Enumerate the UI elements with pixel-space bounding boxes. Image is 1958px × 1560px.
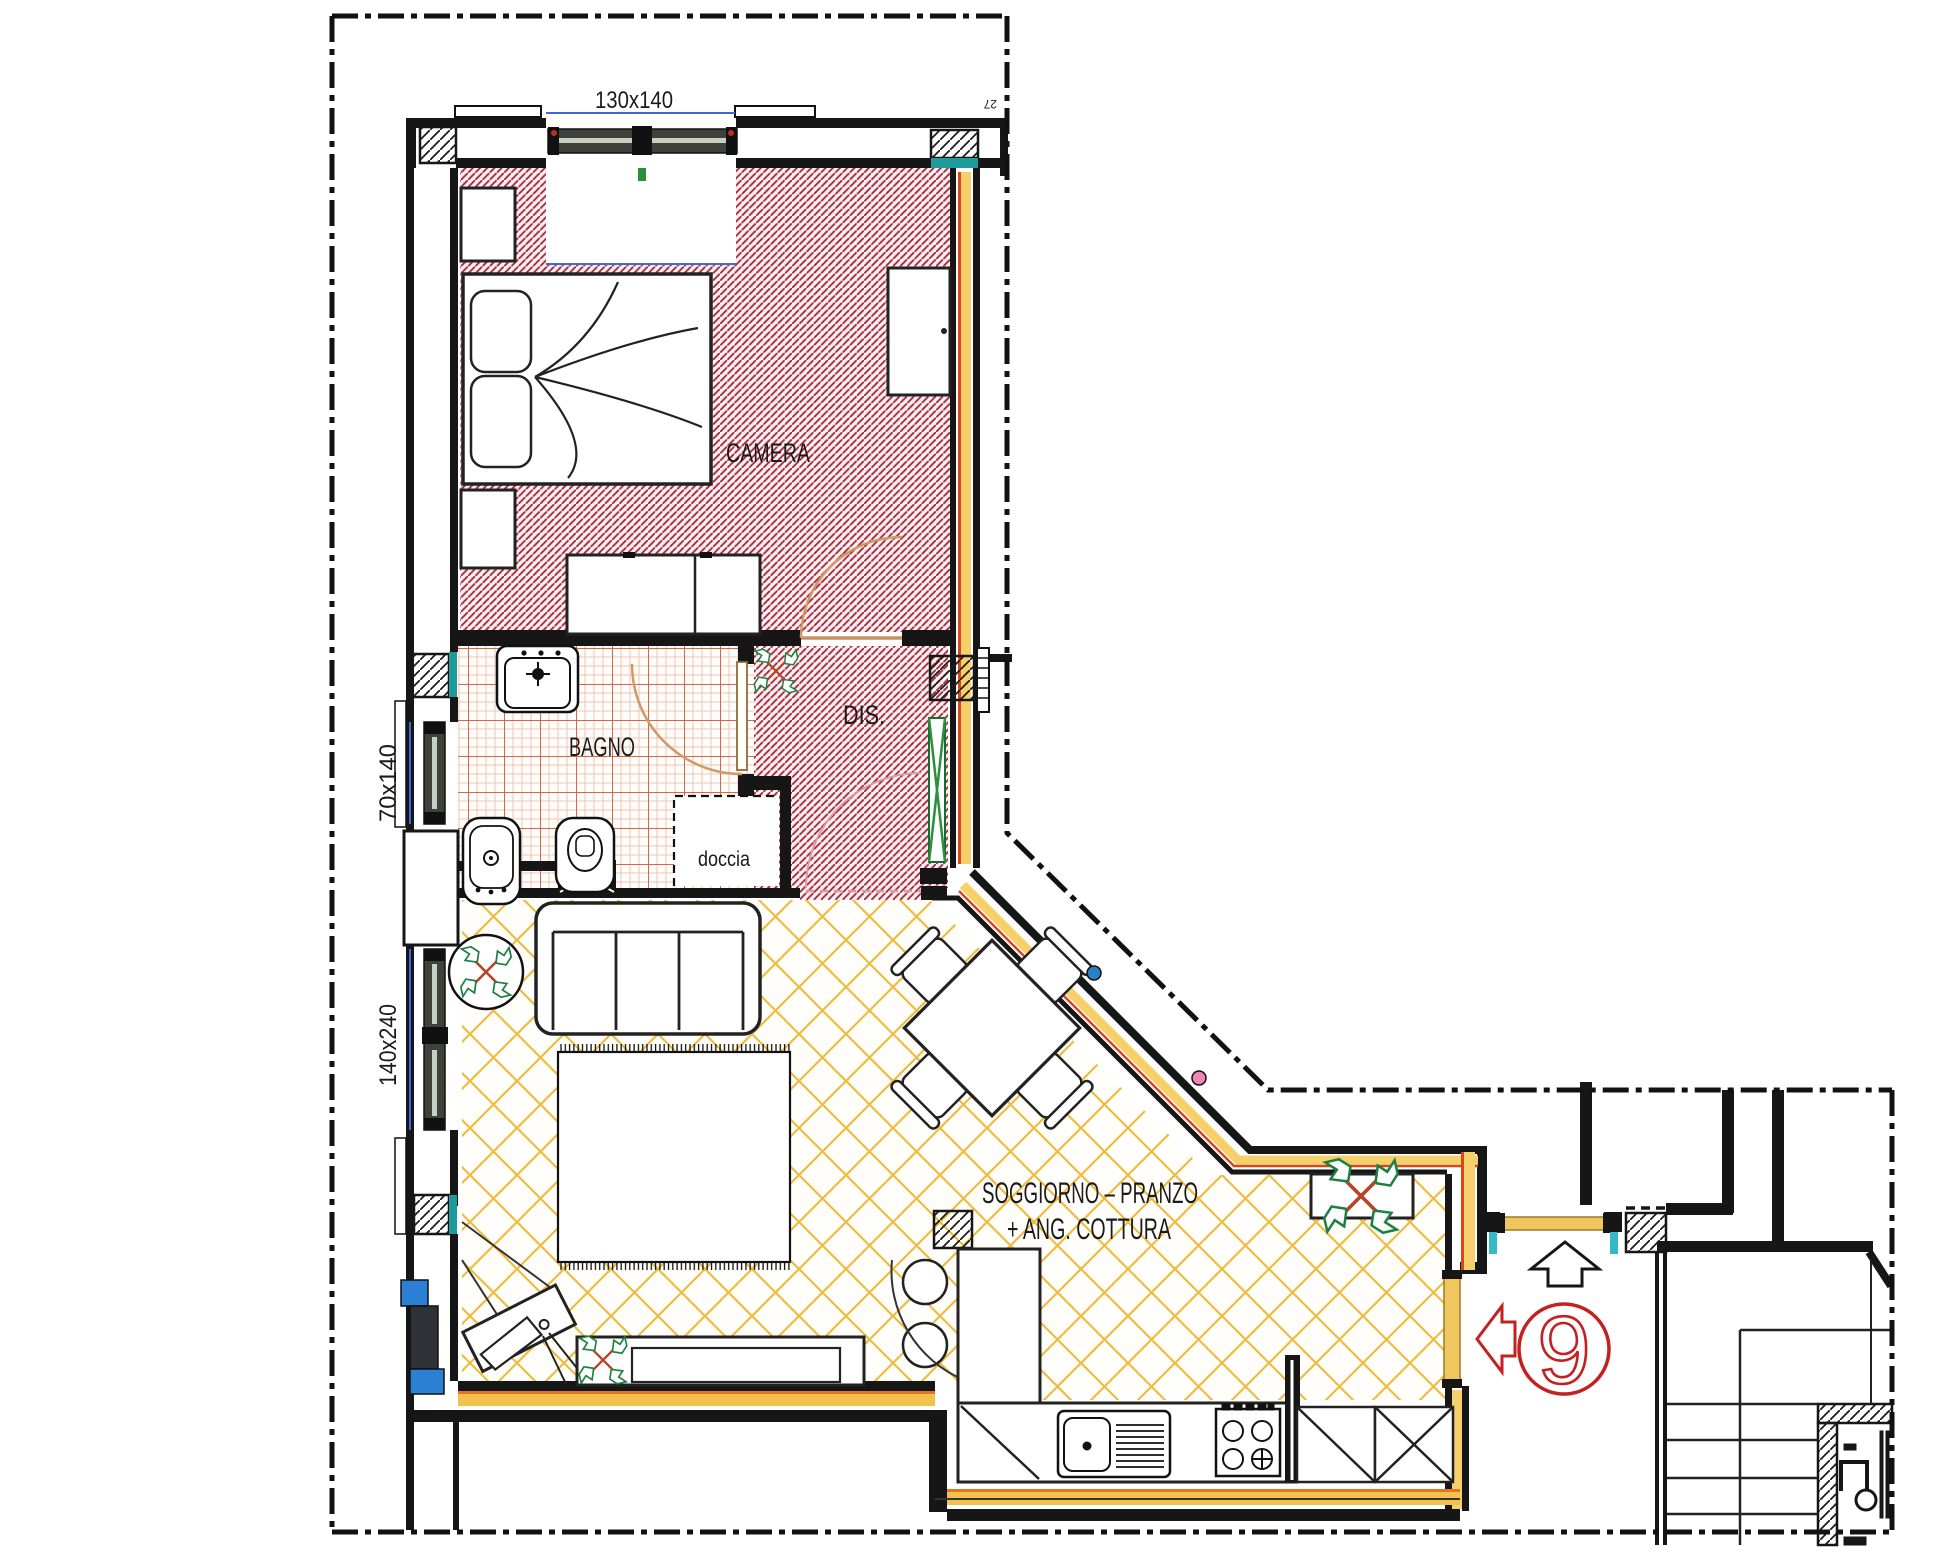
svg-text:27: 27 [983, 97, 997, 111]
svg-text:140x240: 140x240 [375, 1004, 402, 1086]
svg-text:9: 9 [1537, 1297, 1590, 1404]
svg-text:SOGGIORNO – PRANZO: SOGGIORNO – PRANZO [982, 1177, 1198, 1210]
svg-text:DIS.: DIS. [843, 700, 885, 730]
svg-text:doccia: doccia [698, 848, 750, 871]
svg-text:+ ANG. COTTURA: + ANG. COTTURA [1007, 1213, 1171, 1246]
svg-text:CAMERA: CAMERA [726, 438, 810, 468]
svg-text:70x140: 70x140 [375, 744, 402, 822]
svg-text:130x140: 130x140 [595, 87, 673, 114]
svg-text:BAGNO: BAGNO [569, 732, 635, 762]
